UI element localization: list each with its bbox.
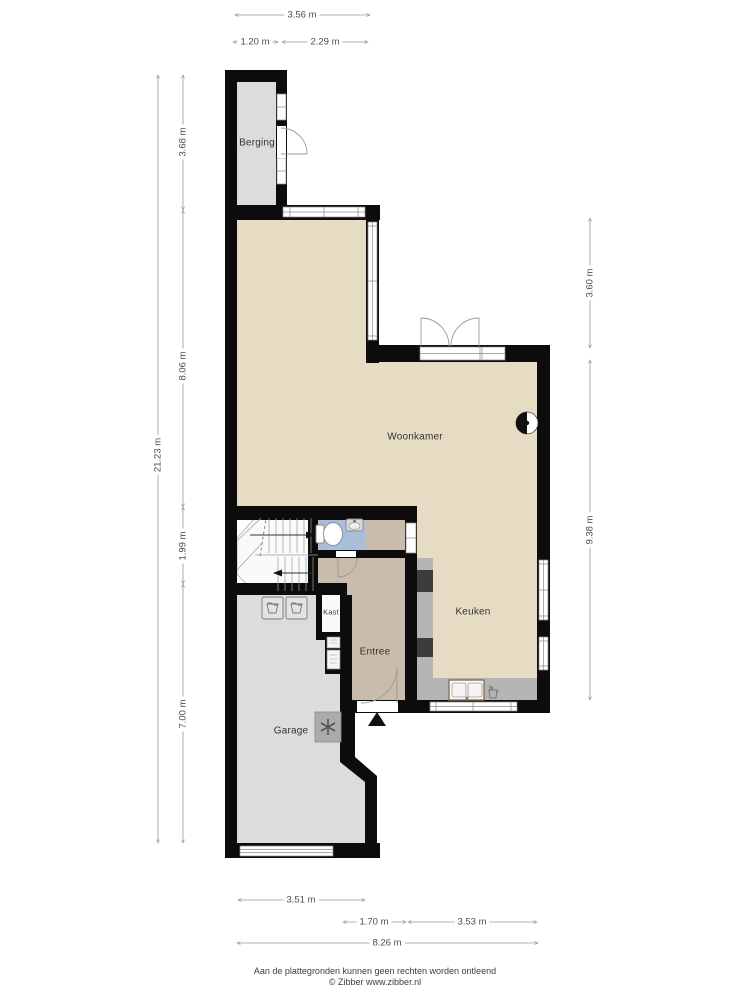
garage-door (240, 846, 333, 856)
flue-icon (516, 412, 538, 434)
entree-interior-window (406, 523, 416, 553)
dim-bottom-keuken: 3.53 m (454, 917, 489, 928)
dim-left-woonkamer: 8.06 m (178, 348, 189, 383)
woonkamer-top-window (283, 207, 365, 217)
dim-top-total: 3.56 m (284, 10, 319, 21)
toilet-icon (316, 523, 343, 546)
floorplan-canvas: 3.56 m 1.20 m 2.29 m 3.68 m 8.06 m 21.23… (0, 0, 750, 1000)
washing-machine-icon (262, 597, 283, 619)
keuken-terrace-opening (420, 347, 505, 360)
kitchen-appliance-1 (417, 570, 433, 592)
room-label-kast: Kast (323, 608, 339, 617)
berging-window-lower (277, 158, 286, 184)
fan-icon (315, 712, 341, 742)
floorplan-drawing (0, 0, 750, 1000)
basin-icon (346, 519, 363, 531)
woonkamer-side-window (368, 222, 377, 340)
dim-left-hal: 1.99 m (178, 528, 189, 563)
room-label-berging: Berging (239, 138, 275, 149)
berging-window-upper (277, 94, 286, 120)
terrace-double-door (421, 318, 479, 346)
entrance-arrow-icon (368, 712, 386, 726)
dim-bottom-entree: 1.70 m (356, 917, 391, 928)
dim-bottom-total: 8.26 m (369, 938, 404, 949)
room-label-entree: Entree (360, 647, 391, 658)
berging-door (277, 126, 307, 158)
keuken-bottom-window (430, 702, 517, 711)
copyright-text: © Zibber www.zibber.nl (0, 977, 750, 987)
meter-icon (327, 637, 340, 669)
disclaimer-text: Aan de plattegronden kunnen geen rechten… (0, 966, 750, 976)
dim-bottom-garage: 3.51 m (283, 895, 318, 906)
dim-left-berging: 3.68 m (178, 124, 189, 159)
room-label-garage: Garage (274, 726, 309, 737)
dim-right-woonkamer: 3.60 m (585, 265, 596, 300)
dim-left-garage: 7.00 m (178, 696, 189, 731)
keuken-right-window-1 (539, 560, 548, 620)
sink-icon (449, 680, 484, 700)
dim-right-keuken: 9.38 m (585, 512, 596, 547)
dryer-icon (286, 597, 307, 619)
keuken-right-window-2 (539, 637, 548, 670)
room-label-woonkamer: Woonkamer (387, 432, 443, 443)
dim-left-total: 21.23 m (153, 435, 164, 475)
dim-top-berging: 1.20 m (237, 37, 272, 48)
dim-top-woonkamer: 2.29 m (307, 37, 342, 48)
room-label-keuken: Keuken (455, 607, 490, 618)
kitchen-appliance-2 (416, 638, 433, 657)
